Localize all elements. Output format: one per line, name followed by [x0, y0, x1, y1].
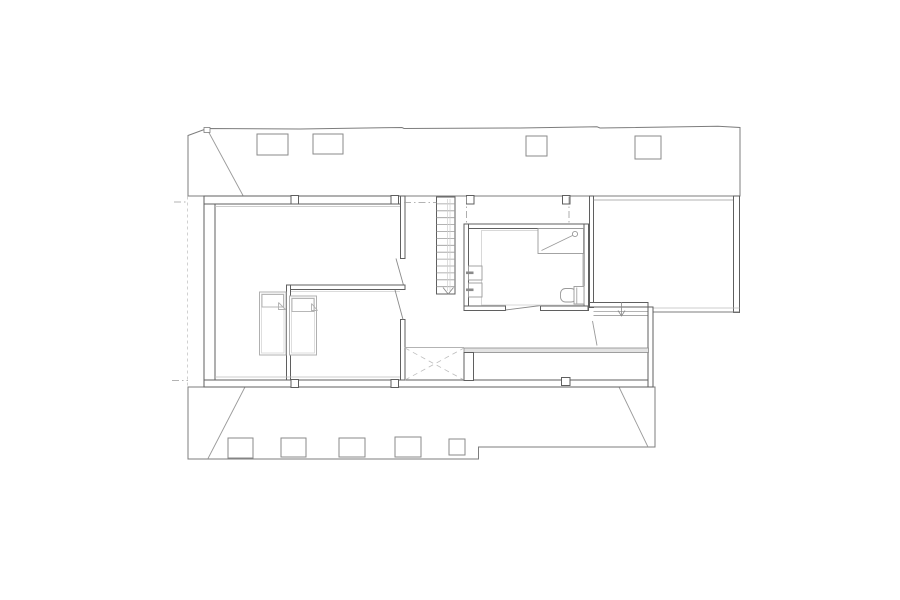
right-room-right-wall — [734, 196, 740, 313]
skylight-lower-2 — [281, 438, 306, 457]
floor-plan-svg — [0, 0, 900, 600]
skylight-lower-5 — [449, 439, 465, 455]
column-post-skybox-left — [467, 196, 475, 205]
top-exterior-wall — [204, 196, 405, 204]
glazed-wall-band — [464, 348, 649, 353]
column-post-top-1 — [291, 196, 299, 205]
bathroom-top-wall — [464, 224, 588, 229]
skylight-lower-3 — [339, 438, 365, 457]
bathroom-left-wall — [464, 224, 469, 311]
skylight-upper-1 — [257, 134, 288, 155]
sink-2-tap — [466, 289, 474, 292]
bottom-exterior-wall — [204, 380, 653, 387]
column-post-bottom-1 — [291, 380, 299, 388]
column-post-bottom-3 — [562, 378, 571, 386]
right-room-bottom-wall — [590, 303, 649, 308]
right-door-leaf — [593, 321, 598, 346]
skylight-upper-2 — [313, 134, 343, 154]
bathroom-bottom-wall-left — [464, 306, 506, 311]
skylight-lower-4 — [395, 437, 421, 457]
drawing-sheet — [0, 0, 900, 600]
bathroom-bottom-wall-right — [541, 306, 589, 311]
skylight-upper-4 — [635, 136, 661, 159]
bedrooms-dividing-wall-horizontal — [287, 285, 406, 290]
column-post-top-2 — [391, 196, 399, 205]
skylight-lower-1 — [228, 438, 253, 458]
left-exterior-wall — [204, 199, 215, 382]
bed-1-pillow — [262, 295, 284, 308]
right-room-left-wall — [590, 196, 594, 308]
right-lower-wall — [648, 307, 653, 387]
skylight-upper-3 — [526, 136, 547, 156]
bathroom-right-wall — [584, 224, 589, 311]
column-post-bottom-2 — [391, 380, 399, 388]
room1-right-wall — [401, 196, 406, 259]
toilet-cistern — [574, 287, 584, 305]
void-right-wall-stub — [464, 353, 474, 381]
sink-1-tap — [466, 272, 474, 275]
bathroom-door-leaf — [506, 306, 542, 311]
room2-door-leaf — [395, 290, 403, 320]
upper-roof-step-notch — [204, 128, 210, 133]
room2-right-wall — [401, 320, 406, 381]
bed-2-pillow — [292, 299, 314, 312]
room1-door-leaf — [396, 259, 404, 288]
